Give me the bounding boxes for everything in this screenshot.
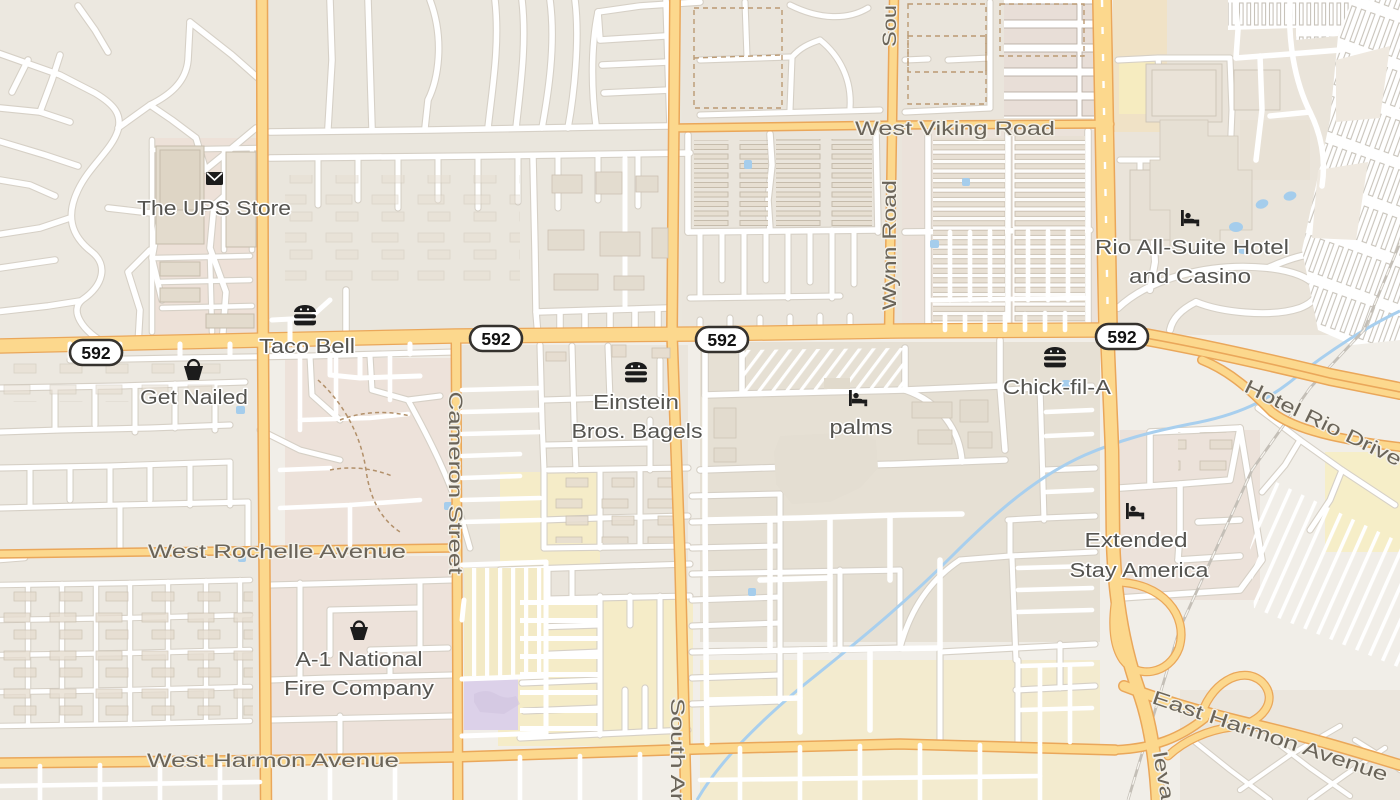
svg-text:592: 592 bbox=[481, 329, 510, 349]
svg-text:Cameron Street: Cameron Street bbox=[444, 392, 466, 576]
svg-text:palms: palms bbox=[830, 417, 893, 439]
svg-text:Fire Company: Fire Company bbox=[284, 678, 434, 700]
svg-text:Einstein: Einstein bbox=[593, 392, 679, 414]
svg-text:Extended: Extended bbox=[1085, 530, 1188, 552]
svg-text:Bros. Bagels: Bros. Bagels bbox=[572, 421, 703, 443]
svg-text:West Viking Road: West Viking Road bbox=[855, 118, 1055, 140]
svg-text:The UPS Store: The UPS Store bbox=[137, 198, 291, 220]
svg-text:Taco Bell: Taco Bell bbox=[259, 336, 355, 358]
svg-text:Chick-fil-A: Chick-fil-A bbox=[1003, 377, 1112, 399]
svg-text:West Harmon Avenue: West Harmon Avenue bbox=[147, 750, 399, 772]
svg-text:592: 592 bbox=[1107, 327, 1136, 347]
svg-text:Stay America: Stay America bbox=[1070, 560, 1210, 582]
svg-text:and Casino: and Casino bbox=[1129, 266, 1251, 288]
svg-text:West Rochelle Avenue: West Rochelle Avenue bbox=[148, 541, 406, 563]
svg-text:Get Nailed: Get Nailed bbox=[140, 387, 248, 409]
svg-text:Sou: Sou bbox=[879, 5, 901, 47]
svg-text:Wynn Road: Wynn Road bbox=[879, 180, 901, 310]
svg-text:592: 592 bbox=[81, 343, 110, 363]
svg-text:A-1 National: A-1 National bbox=[296, 649, 423, 671]
svg-text:South Arville Street: South Arville Street bbox=[666, 698, 688, 800]
svg-text:Rio All-Suite Hotel: Rio All-Suite Hotel bbox=[1095, 237, 1289, 259]
svg-text:592: 592 bbox=[707, 330, 736, 350]
